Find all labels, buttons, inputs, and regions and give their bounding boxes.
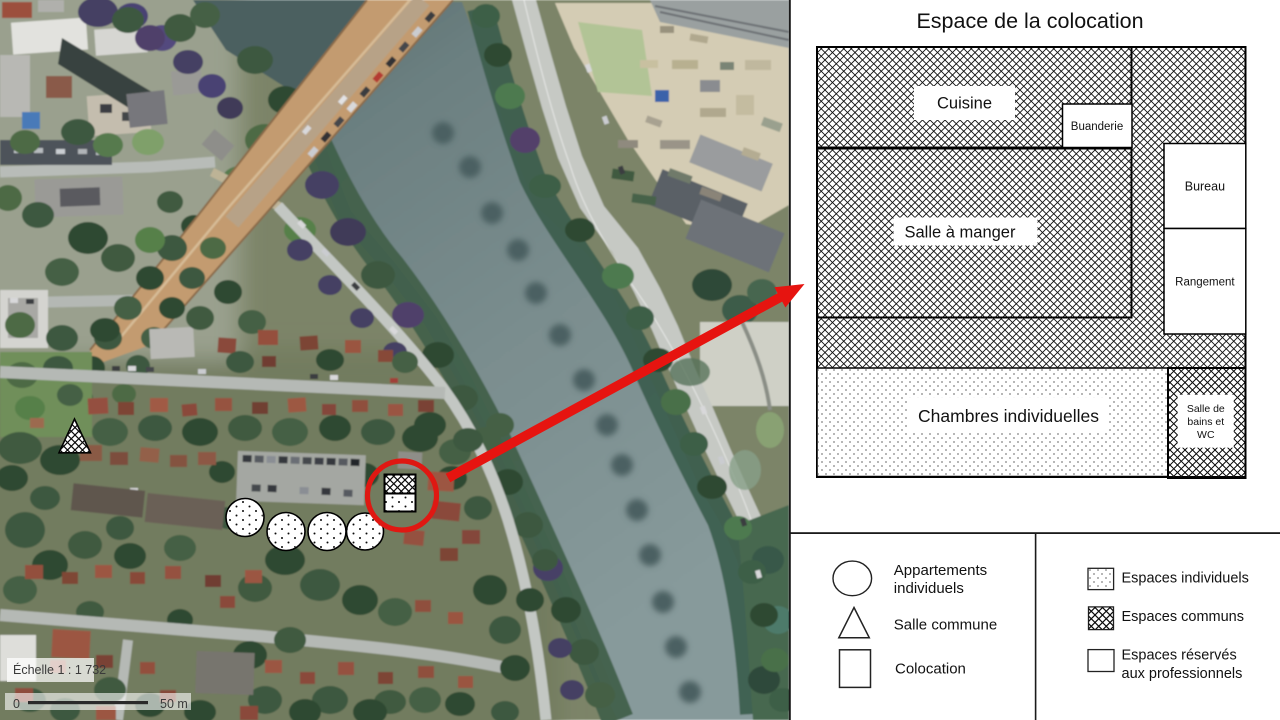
svg-text:individuels: individuels — [894, 580, 964, 597]
svg-text:Salle commune: Salle commune — [894, 616, 997, 633]
svg-text:Espace de la colocation: Espace de la colocation — [916, 9, 1143, 33]
svg-text:bains et: bains et — [1187, 416, 1224, 428]
svg-text:0: 0 — [13, 697, 20, 711]
svg-text:Espaces individuels: Espaces individuels — [1122, 571, 1249, 587]
svg-text:WC: WC — [1197, 429, 1215, 441]
svg-text:Colocation: Colocation — [895, 661, 966, 678]
svg-text:Chambres individuelles: Chambres individuelles — [918, 406, 1099, 426]
svg-text:50 m: 50 m — [160, 697, 188, 711]
svg-text:Salle de: Salle de — [1187, 403, 1225, 415]
svg-text:Cuisine: Cuisine — [937, 95, 992, 113]
svg-text:Buanderie: Buanderie — [1071, 121, 1123, 133]
svg-text:Appartements: Appartements — [894, 562, 987, 579]
svg-text:Bureau: Bureau — [1185, 180, 1225, 194]
svg-text:Salle à manger: Salle à manger — [905, 224, 1016, 242]
svg-text:Espaces réservés: Espaces réservés — [1122, 648, 1237, 664]
svg-text:Rangement: Rangement — [1175, 277, 1235, 289]
svg-text:aux professionnels: aux professionnels — [1122, 666, 1243, 682]
svg-text:Échelle 1 : 1 732: Échelle 1 : 1 732 — [13, 662, 106, 677]
svg-text:Espaces communs: Espaces communs — [1122, 609, 1245, 625]
